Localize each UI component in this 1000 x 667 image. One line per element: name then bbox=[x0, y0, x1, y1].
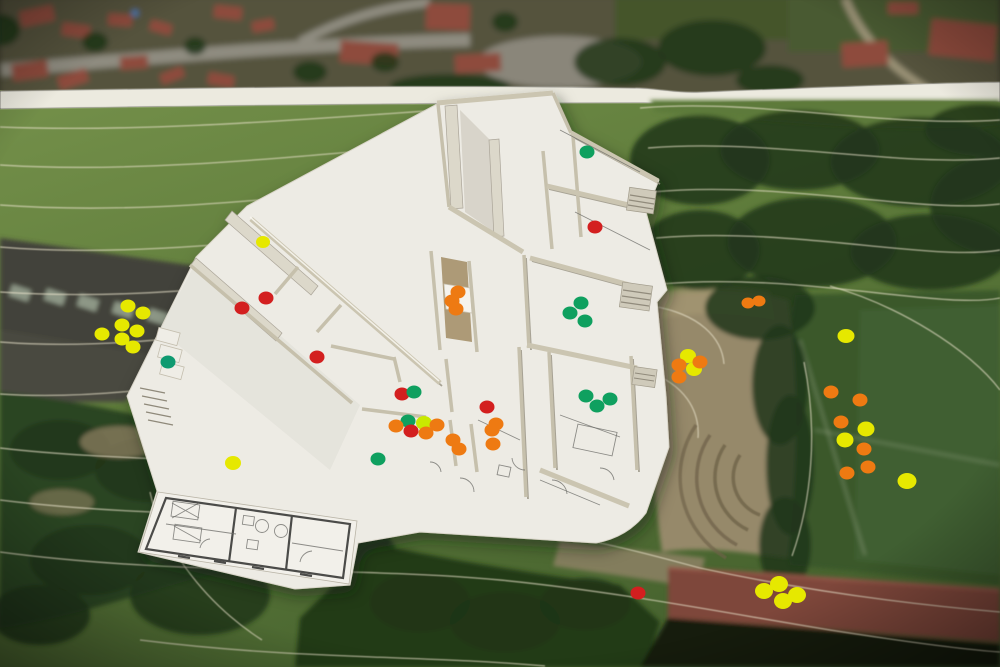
photo-architectural-model bbox=[0, 0, 1000, 667]
site-plan-canvas bbox=[0, 0, 1000, 667]
photo-vignette bbox=[0, 0, 1000, 667]
